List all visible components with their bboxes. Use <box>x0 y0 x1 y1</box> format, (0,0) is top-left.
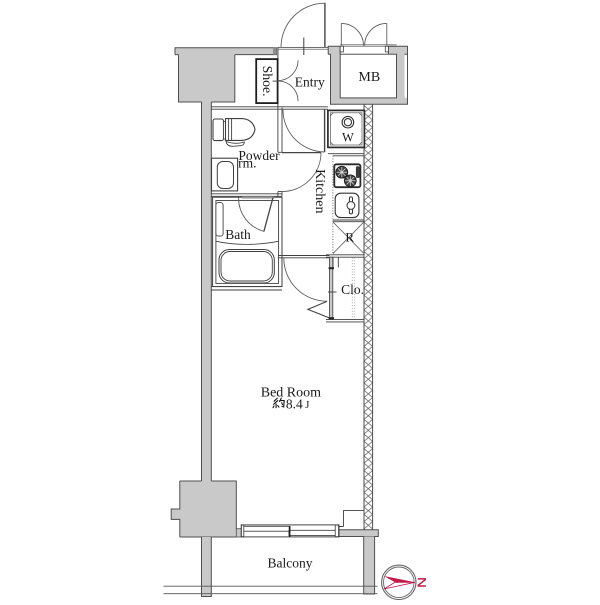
svg-text:Bath: Bath <box>225 227 251 242</box>
svg-text:Balcony: Balcony <box>268 556 313 571</box>
svg-text:8.4: 8.4 <box>286 396 303 411</box>
svg-text:MB: MB <box>358 70 380 85</box>
svg-text:W: W <box>342 131 354 145</box>
svg-text:Clo.: Clo. <box>341 282 364 297</box>
svg-text:Entry: Entry <box>295 75 325 90</box>
svg-text:rm.: rm. <box>238 156 256 171</box>
svg-text:J: J <box>305 400 309 411</box>
svg-text:Kitchen: Kitchen <box>312 169 327 213</box>
svg-text:R: R <box>345 229 354 244</box>
